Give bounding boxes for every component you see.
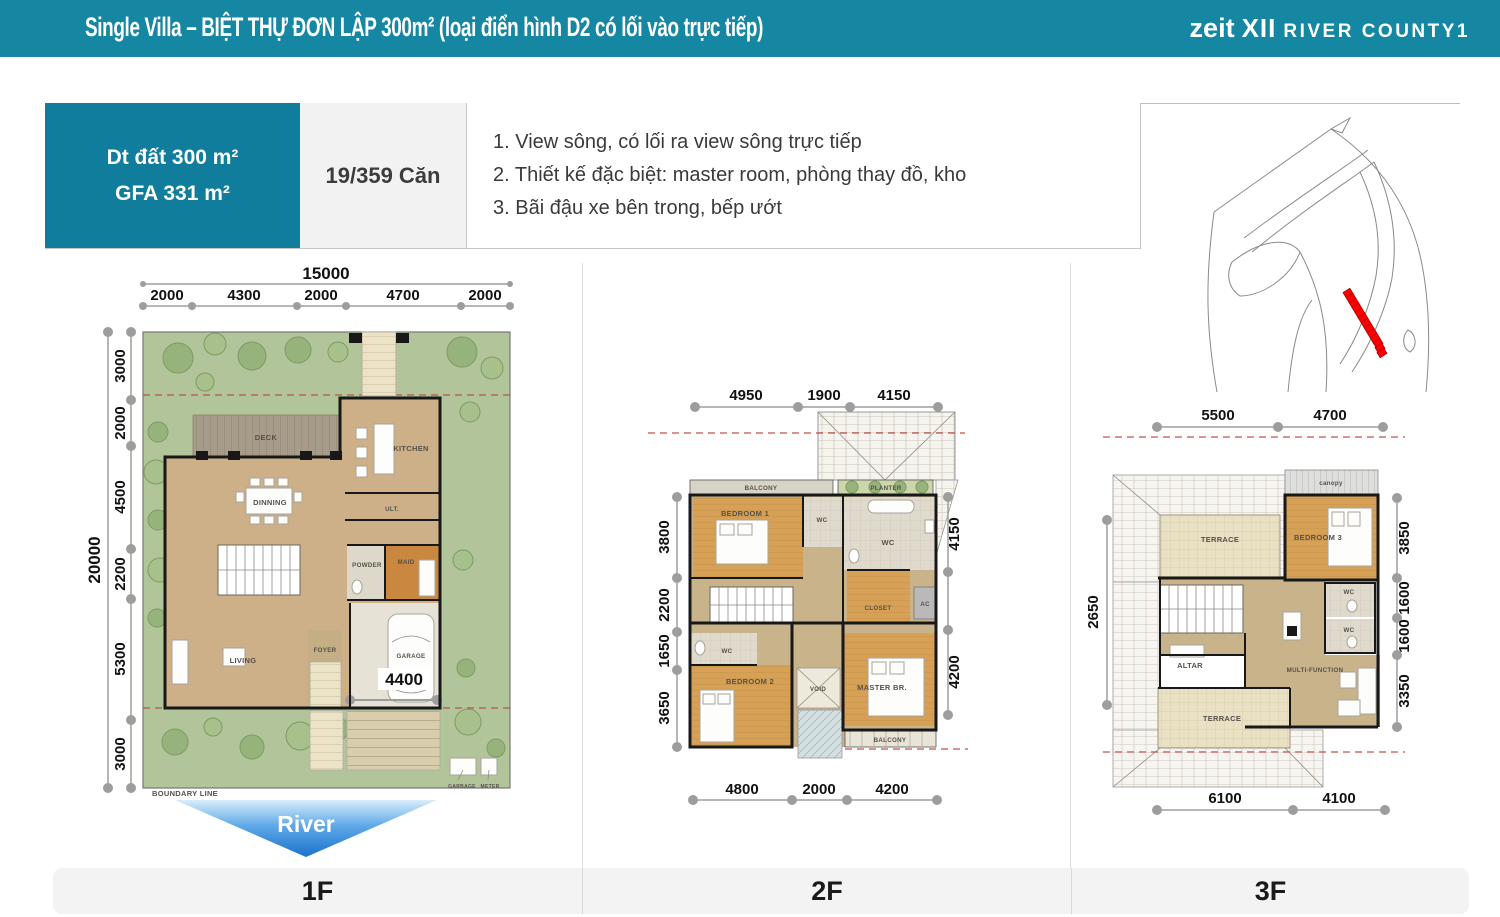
floor-plan-3f: 5500 4700 canopy BEDROOM 3 TERRACE <box>1070 263 1469 868</box>
dim-2f-right: 4200 <box>946 655 963 688</box>
brand-logo-name: RIVER COUNTY1 <box>1283 21 1470 43</box>
dim-2f-left: 1650 <box>656 634 673 667</box>
dim-1f-left: 3000 <box>112 737 129 770</box>
room-terrace-bottom-label: TERRACE <box>1203 714 1241 723</box>
dim-3f-top: 5500 <box>1201 407 1234 424</box>
gfa-label: GFA 331 m² <box>115 182 230 206</box>
room-ac-label: AC <box>920 601 930 608</box>
room-foyer-label: FOYER <box>314 647 337 654</box>
dim-1f-total-height: 20000 <box>85 536 104 583</box>
page-title: Single Villa – BIỆT THỰ ĐƠN LẬP 300m² (l… <box>85 12 763 43</box>
dim-2f-right: 4150 <box>946 517 963 550</box>
dim-1f-top: 4700 <box>386 287 419 304</box>
dim-2f-left: 3800 <box>656 520 673 553</box>
room-maid-label: MAID <box>397 559 414 566</box>
room-void-label: VOID <box>810 686 827 693</box>
room-deck-label: DECK <box>255 433 278 442</box>
dim-3f-right: 3350 <box>1396 674 1413 707</box>
dim-3f-bottom: 4100 <box>1322 790 1355 807</box>
room-ult-label: ULT. <box>385 506 399 513</box>
dim-2f-bottom: 4200 <box>875 781 908 798</box>
dim-1f-left: 4500 <box>112 480 129 513</box>
dim-1f-top: 4300 <box>227 287 260 304</box>
garbage-label: GARBAGE <box>448 784 476 790</box>
room-multi-label: MULTI-FUNCTION <box>1287 667 1344 674</box>
feature-item: 1. View sông, có lối ra view sông trực t… <box>493 131 1140 154</box>
dim-1f-left: 3000 <box>112 349 129 382</box>
room-wc2-label: WC <box>881 538 894 547</box>
room-living-label: LIVING <box>230 656 257 665</box>
dim-2f-top: 1900 <box>807 387 840 404</box>
dim-1f-top: 2000 <box>468 287 501 304</box>
room-closet-label: CLOSET <box>865 605 892 612</box>
dim-3f-left: 2650 <box>1085 595 1102 628</box>
room-wc3-label: WC <box>722 648 733 655</box>
room-wc1-label: WC <box>817 517 828 524</box>
dim-1f-top: 2000 <box>304 287 337 304</box>
brand-logo-zeit: zeit <box>1190 13 1235 44</box>
brand-logo: zeit XII RIVER COUNTY1 <box>1190 13 1470 44</box>
dim-1f-left: 2200 <box>112 557 129 590</box>
room-dinning-label: DINNING <box>253 498 287 507</box>
room-balcony-top-label: BALCONY <box>745 485 778 492</box>
room-bedroom3-label: BEDROOM 3 <box>1294 533 1342 542</box>
tab-2f-label: 2F <box>811 876 843 907</box>
dim-2f-left: 2200 <box>656 588 673 621</box>
summary-table: Dt đất 300 m² GFA 331 m² 19/359 Căn 1. V… <box>45 103 1141 249</box>
dim-3f-right: 1600 <box>1396 619 1413 652</box>
room-canopy-label: canopy <box>1319 480 1343 487</box>
room-balcony-bottom-label: BALCONY <box>874 737 907 744</box>
area-summary-cell: Dt đất 300 m² GFA 331 m² <box>45 103 300 248</box>
dim-3f-top: 4700 <box>1313 407 1346 424</box>
dim-1f-left: 5300 <box>112 642 129 675</box>
room-wc1-3f-label: WC <box>1344 589 1355 596</box>
floor-tab-bar: 1F 2F 3F <box>53 868 1469 914</box>
tab-3f-label: 3F <box>1255 876 1287 907</box>
brand-logo-mark: XII <box>1242 13 1277 44</box>
room-kitchen-label: KITCHEN <box>393 444 428 453</box>
room-bedroom1-label: BEDROOM 1 <box>721 509 769 518</box>
dim-1f-total-width: 15000 <box>302 264 349 283</box>
floor-plan-2f: 4950 1900 4150 3800 2200 1650 3650 4150 … <box>582 263 1070 868</box>
room-terrace-top-label: TERRACE <box>1201 535 1239 544</box>
dim-3f-bottom: 6100 <box>1208 790 1241 807</box>
land-area-label: Dt đất 300 m² <box>107 146 239 170</box>
room-bedroom2-label: BEDROOM 2 <box>726 677 774 686</box>
meter-label: METER <box>481 784 500 790</box>
room-master-label: MASTER BR. <box>857 683 907 692</box>
dim-2f-top: 4950 <box>729 387 762 404</box>
unit-count-label: 19/359 Căn <box>326 163 441 189</box>
feature-item: 2. Thiết kế đặc biệt: master room, phòng… <box>493 164 1140 187</box>
features-list: 1. View sông, có lối ra view sông trực t… <box>467 103 1140 248</box>
slide: Single Villa – BIỆT THỰ ĐƠN LẬP 300m² (l… <box>0 0 1500 917</box>
tab-1f[interactable]: 1F <box>53 868 582 914</box>
dim-3f-right: 3850 <box>1396 521 1413 554</box>
room-powder-label: POWDER <box>352 562 382 569</box>
river-label: River <box>277 811 335 837</box>
header-bar: Single Villa – BIỆT THỰ ĐƠN LẬP 300m² (l… <box>0 0 1500 57</box>
room-altar-label: ALTAR <box>1177 661 1203 670</box>
dim-2f-bottom: 2000 <box>802 781 835 798</box>
floor-plan-1f: 15000 2000 4300 2000 4700 2000 20000 300… <box>53 263 582 868</box>
feature-item: 3. Bãi đậu xe bên trong, bếp ướt <box>493 197 1140 220</box>
tab-2f[interactable]: 2F <box>582 868 1071 914</box>
tab-3f[interactable]: 3F <box>1071 868 1469 914</box>
dim-2f-top: 4150 <box>877 387 910 404</box>
dim-3f-right: 1600 <box>1396 581 1413 614</box>
dim-garage: 4400 <box>385 670 423 689</box>
tab-1f-label: 1F <box>302 876 334 907</box>
boundary-line-label: BOUNDARY LINE <box>152 789 218 798</box>
unit-count-cell: 19/359 Căn <box>300 103 467 248</box>
dim-2f-left: 3650 <box>656 691 673 724</box>
dim-1f-top: 2000 <box>150 287 183 304</box>
room-planter-label: PLANTER <box>870 485 902 492</box>
room-wc2-3f-label: WC <box>1344 627 1355 634</box>
dim-1f-left: 2000 <box>112 406 129 439</box>
dim-2f-bottom: 4800 <box>725 781 758 798</box>
room-garage-label: GARAGE <box>397 653 426 660</box>
